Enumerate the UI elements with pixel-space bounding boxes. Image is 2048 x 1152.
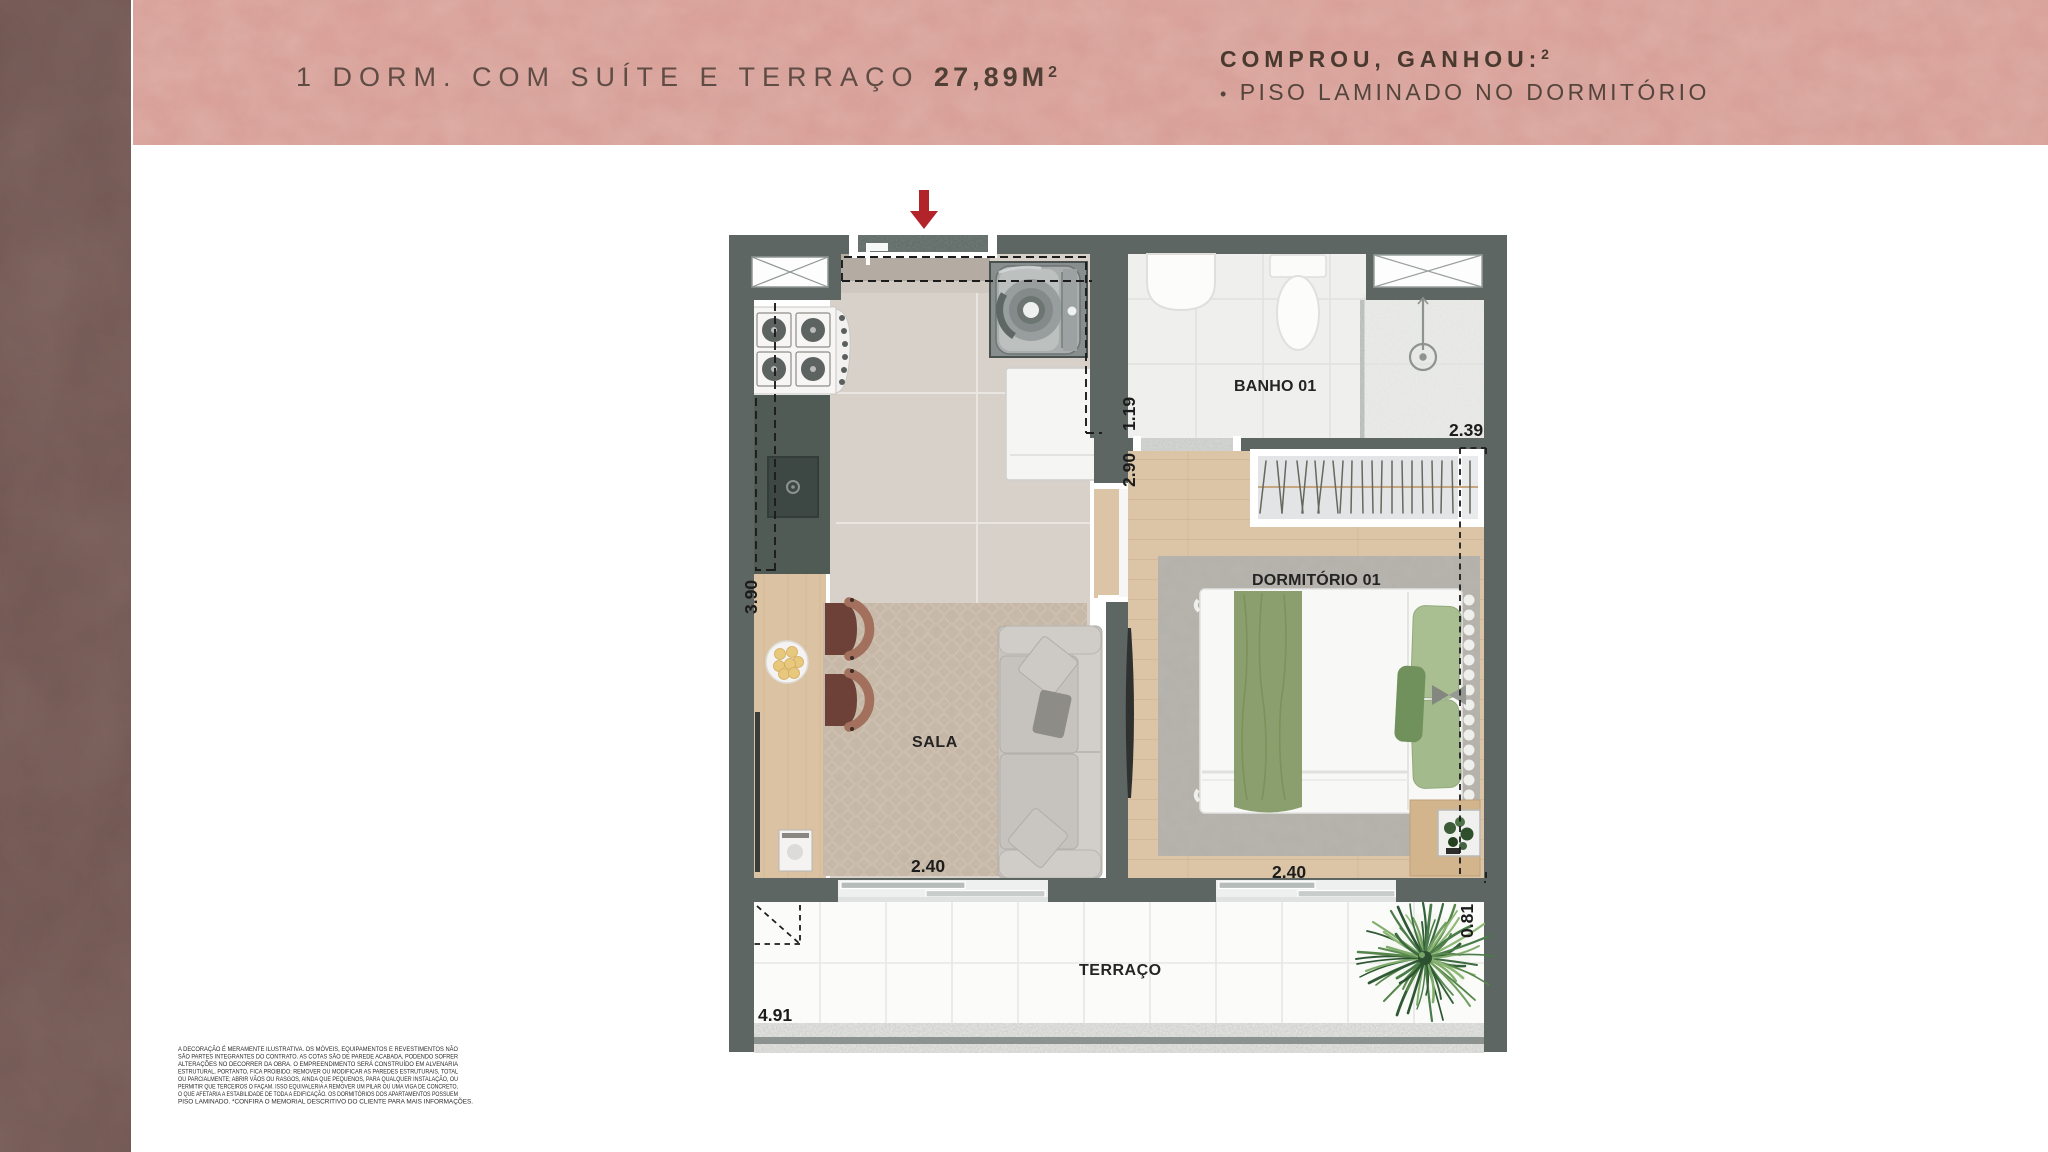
svg-text:2.40: 2.40 (911, 856, 945, 876)
svg-text:4.91: 4.91 (758, 1005, 792, 1025)
svg-text:PISO LAMINADO. *CONFIRA O MEMO: PISO LAMINADO. *CONFIRA O MEMORIAL DESCR… (178, 1097, 473, 1106)
svg-text:•PISO LAMINADO NO DORMITÓRIO: •PISO LAMINADO NO DORMITÓRIO (1220, 79, 1710, 105)
svg-text:2.39: 2.39 (1449, 420, 1483, 440)
svg-text:2.40: 2.40 (1272, 862, 1306, 882)
svg-text:BANHO 01: BANHO 01 (1234, 378, 1317, 395)
svg-text:DORMITÓRIO 01: DORMITÓRIO 01 (1252, 570, 1381, 589)
svg-text:COMPROU, GANHOU:2: COMPROU, GANHOU:2 (1220, 46, 1554, 72)
svg-text:SALA: SALA (912, 734, 958, 751)
svg-text:2.90: 2.90 (1119, 453, 1139, 487)
svg-text:ESTRUTURAL, PORTANTO, FICA PRO: ESTRUTURAL, PORTANTO, FICA PROIBIDO: REM… (178, 1069, 458, 1076)
svg-text:1.19: 1.19 (1119, 397, 1139, 431)
svg-text:3.90: 3.90 (741, 580, 761, 614)
svg-text:ALTERAÇÕES NO DECORRER DA OBRA: ALTERAÇÕES NO DECORRER DA OBRA. O EMPREE… (178, 1059, 459, 1068)
svg-text:A DECORAÇÃO É MERAMENTE ILUSTR: A DECORAÇÃO É MERAMENTE ILUSTRATIVA. OS … (178, 1044, 458, 1053)
svg-text:1 DORM. COM SUÍTE E TERRAÇO 27: 1 DORM. COM SUÍTE E TERRAÇO 27,89M2 (296, 62, 1064, 92)
svg-text:TERRAÇO: TERRAÇO (1079, 962, 1162, 979)
svg-text:PERMITIR QUE TERCEIROS O FAÇAM: PERMITIR QUE TERCEIROS O FAÇAM. ISSO EQU… (178, 1084, 458, 1091)
svg-text:SÃO PARTES INTEGRANTES DO CONT: SÃO PARTES INTEGRANTES DO CONTRATO. AS C… (178, 1052, 458, 1061)
svg-text:0.81: 0.81 (1457, 904, 1477, 938)
svg-text:O QUE AFETARIA A ESTABILIDADE: O QUE AFETARIA A ESTABILIDADE DE TODA A … (178, 1089, 458, 1098)
svg-text:OU PARCIALMENTE; ABRIR VÃOS OU: OU PARCIALMENTE; ABRIR VÃOS OU RASGOS, A… (178, 1074, 458, 1083)
